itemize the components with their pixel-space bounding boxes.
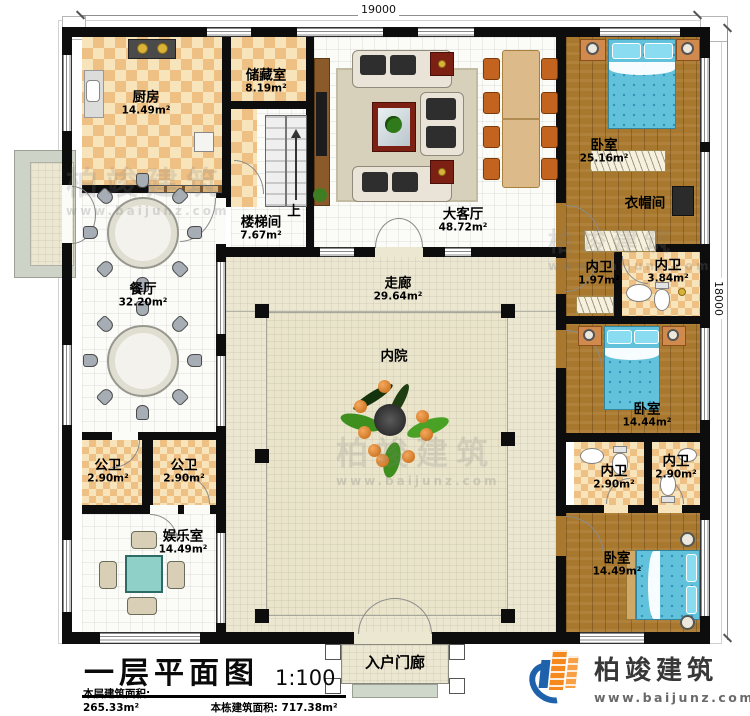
brand-text-block: 柏竣建筑 www.baijunz.com [594, 650, 750, 705]
room-name: 餐厅 [119, 283, 168, 298]
stat-label: 本栋建筑面积: [211, 702, 278, 714]
stairs-up-arrowhead-icon [291, 124, 301, 138]
room-name: 内卫 [655, 455, 696, 470]
window [62, 55, 72, 131]
window [207, 27, 251, 37]
game-room-label: 娱乐室14.49m² [159, 530, 208, 557]
fruit [358, 426, 371, 439]
chair [127, 597, 157, 615]
kitchen-sink-icon [86, 80, 100, 102]
wardrobe [576, 296, 614, 314]
brand-name: 柏竣建筑 [594, 650, 750, 687]
brand-url: www.baijunz.com [594, 690, 750, 705]
bedroom2-label: 卧室14.44m² [623, 403, 672, 430]
porch-step [352, 684, 438, 698]
lamp-icon [680, 532, 695, 547]
cloak-bottom-wall [566, 316, 710, 324]
room-name: 卧室 [580, 139, 629, 154]
cloakroom-label: 衣帽间 [625, 196, 666, 211]
lamp-icon [667, 329, 679, 341]
door-gap [556, 516, 566, 556]
stat-value: 717.38m² [282, 702, 338, 714]
door-gap [216, 198, 226, 244]
round-dining-table [107, 325, 179, 397]
toilet-tank-icon [613, 446, 627, 453]
door-gap [556, 258, 566, 294]
window [100, 632, 200, 644]
door-gap [184, 505, 210, 514]
courtyard-label: 内院 [381, 349, 408, 364]
plant-pot [374, 404, 406, 436]
window [600, 27, 680, 37]
bath-197-label: 内卫1.97m² [578, 261, 619, 288]
window-screen [320, 247, 354, 257]
door-gap [604, 505, 628, 513]
room-area: 2.90m² [655, 470, 696, 482]
sofa-cushion [392, 172, 418, 192]
chair [83, 226, 98, 239]
dimension-label-right: 18000 [712, 278, 725, 319]
lamp-icon [438, 168, 446, 176]
burner-icon [137, 43, 148, 54]
plant-icon [385, 116, 402, 133]
dresser-icon [672, 186, 694, 216]
bath-right-mid-wall [644, 442, 652, 505]
sink-icon [626, 284, 652, 302]
pillow [612, 43, 641, 59]
door-gap [556, 330, 566, 368]
bath-right2-label: 内卫2.90m² [655, 455, 696, 482]
courtyard-plant-icon [340, 370, 440, 470]
courtyard-column [501, 609, 515, 623]
chair [187, 226, 202, 239]
sofa-cushion [426, 98, 456, 120]
room-name: 内卫 [593, 465, 634, 480]
wardrobe [584, 230, 656, 252]
window [700, 152, 710, 244]
room-area: 8.19m² [245, 84, 286, 96]
living-room-label: 大客厅48.72m² [439, 208, 488, 235]
fridge-icon [194, 132, 214, 152]
chair [541, 58, 558, 80]
door-gap [556, 203, 566, 247]
fruit [378, 380, 391, 393]
room-area: 32.20m² [119, 298, 168, 310]
room-name: 入户门廊 [365, 655, 425, 672]
sofa-cushion [360, 55, 386, 75]
chair [483, 92, 500, 114]
sofa-cushion [426, 126, 456, 148]
lamp-icon [678, 288, 686, 296]
lamp-icon [583, 329, 595, 341]
room-name: 娱乐室 [159, 530, 208, 545]
dimension-line-right [727, 30, 728, 640]
stairs-up-arrow-icon [295, 132, 297, 200]
stat-value: 265.33m² [83, 702, 139, 714]
bedroom2-bottom-wall [566, 433, 710, 442]
storage-label: 储藏室8.19m² [245, 69, 286, 96]
room-name: 走廊 [374, 277, 423, 292]
pillow [634, 330, 659, 344]
chair [483, 126, 500, 148]
door-gap [375, 247, 423, 257]
stairs-up-label: 上 [287, 204, 301, 219]
public-bath1-label: 公卫2.90m² [87, 459, 128, 486]
pillow [644, 43, 673, 59]
door-gap [62, 185, 72, 243]
chair [541, 92, 558, 114]
courtyard-column [501, 432, 515, 446]
lamp-icon [681, 42, 694, 55]
window [580, 632, 644, 644]
room-name: 内院 [381, 349, 408, 364]
window [297, 27, 383, 37]
room-area: 29.64m² [374, 292, 423, 304]
blanket-fold [648, 551, 660, 619]
room-name: 公卫 [163, 459, 204, 474]
room-area: 25.16m² [580, 154, 629, 166]
stats-row: 本层建筑面积: 265.33m² 本栋建筑面积: 717.38m² [83, 687, 338, 715]
stair-hall-label: 楼梯间7.67m² [240, 216, 281, 243]
window-screen [216, 262, 226, 334]
room-name: 大客厅 [439, 208, 488, 223]
window [418, 27, 474, 37]
stat-label: 本层建筑面积: [83, 688, 150, 700]
fruit [416, 410, 429, 423]
window-screen [445, 247, 471, 257]
stat-item: 本层建筑面积: 265.33m² [83, 687, 207, 715]
chair [131, 531, 157, 549]
stat-item: 本栋建筑面积: 717.38m² [211, 702, 338, 714]
room-area: 1.97m² [578, 276, 619, 288]
room-area: 2.90m² [593, 480, 634, 492]
lamp-icon [438, 60, 446, 68]
floor-plan-canvas: 19000 18000 [0, 0, 750, 716]
bath-left-mid-wall [142, 440, 153, 505]
chair [541, 126, 558, 148]
fruit [402, 450, 415, 463]
room-area: 2.90m² [87, 474, 128, 486]
room-area: 48.72m² [439, 223, 488, 235]
dimension-label-top: 19000 [358, 3, 399, 16]
room-name: 公卫 [87, 459, 128, 474]
room-name: 储藏室 [245, 69, 286, 84]
chair [483, 58, 500, 80]
blanket-fold [609, 62, 675, 75]
chair [83, 354, 98, 367]
bath-384-label: 内卫3.84m² [647, 259, 688, 286]
pillow [686, 554, 697, 582]
pillow [686, 586, 697, 614]
game-table [125, 555, 163, 593]
window-screen [216, 533, 226, 623]
chair [136, 173, 149, 188]
fruit [376, 454, 389, 467]
lamp-icon [586, 42, 599, 55]
door-gap [150, 505, 178, 514]
brand-logo-mark-icon [526, 648, 588, 706]
courtyard-column [255, 304, 269, 318]
bath-right1-label: 内卫2.90m² [593, 465, 634, 492]
stairs-up-text: 上 [287, 204, 301, 219]
room-area: 14.44m² [623, 418, 672, 430]
room-area: 14.49m² [159, 545, 208, 557]
dining-room-label: 餐厅32.20m² [119, 283, 168, 310]
plant-icon [313, 188, 327, 202]
page-title: 一层平面图 [84, 648, 259, 692]
bedroom3-label: 卧室14.49m² [593, 552, 642, 579]
courtyard-column [255, 609, 269, 623]
fruit [420, 428, 433, 441]
kitchen-label: 厨房14.49m² [122, 91, 171, 118]
chair [99, 561, 117, 589]
chair [136, 405, 149, 420]
logo-building-orange2 [565, 656, 578, 688]
corridor-label: 走廊29.64m² [374, 277, 423, 304]
bath-left-top-wall [82, 432, 216, 440]
sink-icon [580, 448, 604, 464]
bedroom1-label: 卧室25.16m² [580, 139, 629, 166]
tv-icon [316, 92, 327, 156]
stats-block: 本层建筑面积: 265.33m² 本栋建筑面积: 717.38m² 占地面积: … [83, 687, 338, 716]
room-name: 卧室 [623, 403, 672, 418]
room-name: 楼梯间 [240, 216, 281, 231]
entry-porch-label: 入户门廊 [365, 655, 425, 672]
room-area: 3.84m² [647, 274, 688, 286]
chair [483, 158, 500, 180]
porch-column [449, 644, 465, 660]
chair [167, 561, 185, 589]
window [62, 540, 72, 612]
window-screen [216, 356, 226, 426]
door-gap [658, 505, 682, 513]
room-name: 卧室 [593, 552, 642, 567]
window [700, 58, 710, 142]
window [62, 345, 72, 425]
room-area: 14.49m² [593, 567, 642, 579]
door-gap [112, 432, 138, 440]
room-name: 厨房 [122, 91, 171, 106]
room-name: 衣帽间 [625, 196, 666, 211]
toilet-icon [654, 289, 670, 311]
room-area: 2.90m² [163, 474, 204, 486]
burner-icon [157, 43, 168, 54]
lamp-icon [680, 615, 695, 630]
kitchen-storage-wall [222, 37, 231, 207]
toilet-tank-icon [661, 496, 675, 503]
fruit [354, 400, 367, 413]
stove-icon [128, 39, 176, 59]
courtyard-column [255, 449, 269, 463]
sofa-cushion [390, 55, 416, 75]
round-dining-table [107, 197, 179, 269]
window [700, 328, 710, 420]
window [700, 520, 710, 616]
chair [187, 354, 202, 367]
chair [541, 158, 558, 180]
pillow [607, 330, 632, 344]
room-name: 内卫 [647, 259, 688, 274]
public-bath2-label: 公卫2.90m² [163, 459, 204, 486]
courtyard-column [501, 304, 515, 318]
storage-bottom-wall [231, 101, 306, 109]
sofa-cushion [362, 172, 388, 192]
stairhall-living-wall [306, 37, 314, 247]
porch-column [449, 678, 465, 694]
room-area: 7.67m² [240, 231, 281, 243]
bath-right-bottom-wall [566, 505, 710, 513]
staircase-rail [285, 115, 287, 207]
room-area: 14.49m² [122, 106, 171, 118]
room-name: 内卫 [578, 261, 619, 276]
blanket-fold [605, 348, 659, 360]
dining-table-seam [502, 118, 540, 120]
